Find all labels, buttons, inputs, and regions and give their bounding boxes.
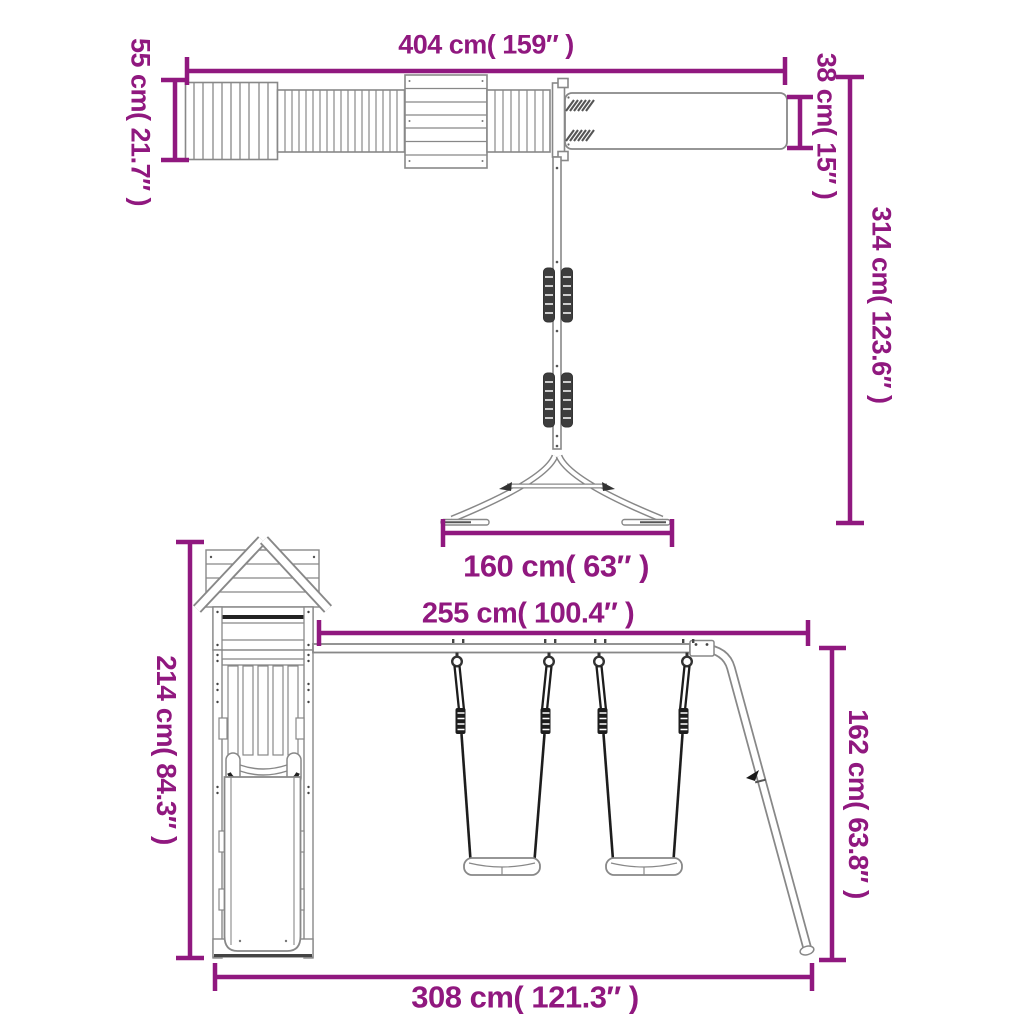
monkeybar-top-view [186, 75, 788, 525]
swing-1 [455, 666, 552, 875]
label-beam-width: 38 cm( 15″ ) [813, 53, 840, 200]
swing-hangers [452, 653, 692, 667]
slide-chute [225, 777, 301, 951]
overhead-beam [565, 93, 787, 149]
label-total-width-bottom: 308 cm( 121.3″ ) [411, 982, 638, 1013]
playhouse-tower [197, 540, 328, 958]
swing-leg [703, 648, 815, 956]
swing-beam [313, 644, 690, 653]
label-swing-frame-height: 162 cm( 63.8″ ) [844, 709, 872, 899]
swing-set [313, 639, 815, 956]
balusters [228, 666, 298, 755]
label-total-width-top: 404 cm( 159″ ) [398, 32, 574, 59]
dimline-38 [787, 97, 813, 148]
dimension-diagram: 404 cm( 159″ ) 55 cm( 21.7″ ) 38 cm( 15″… [0, 0, 1024, 1024]
label-platform-depth: 55 cm( 21.7″ ) [127, 38, 154, 206]
dimline-162 [819, 648, 846, 960]
beam-bracket [553, 83, 565, 157]
label-tower-height: 214 cm( 84.3″ ) [152, 655, 180, 845]
label-stand-base-width: 160 cm( 63″ ) [463, 551, 649, 582]
a-frame-stand [441, 456, 670, 525]
swing-2 [597, 666, 690, 875]
label-swing-beam-length: 255 cm( 100.4″ ) [422, 600, 634, 629]
label-monkeybar-height: 314 cm( 123.6″ ) [868, 206, 895, 403]
